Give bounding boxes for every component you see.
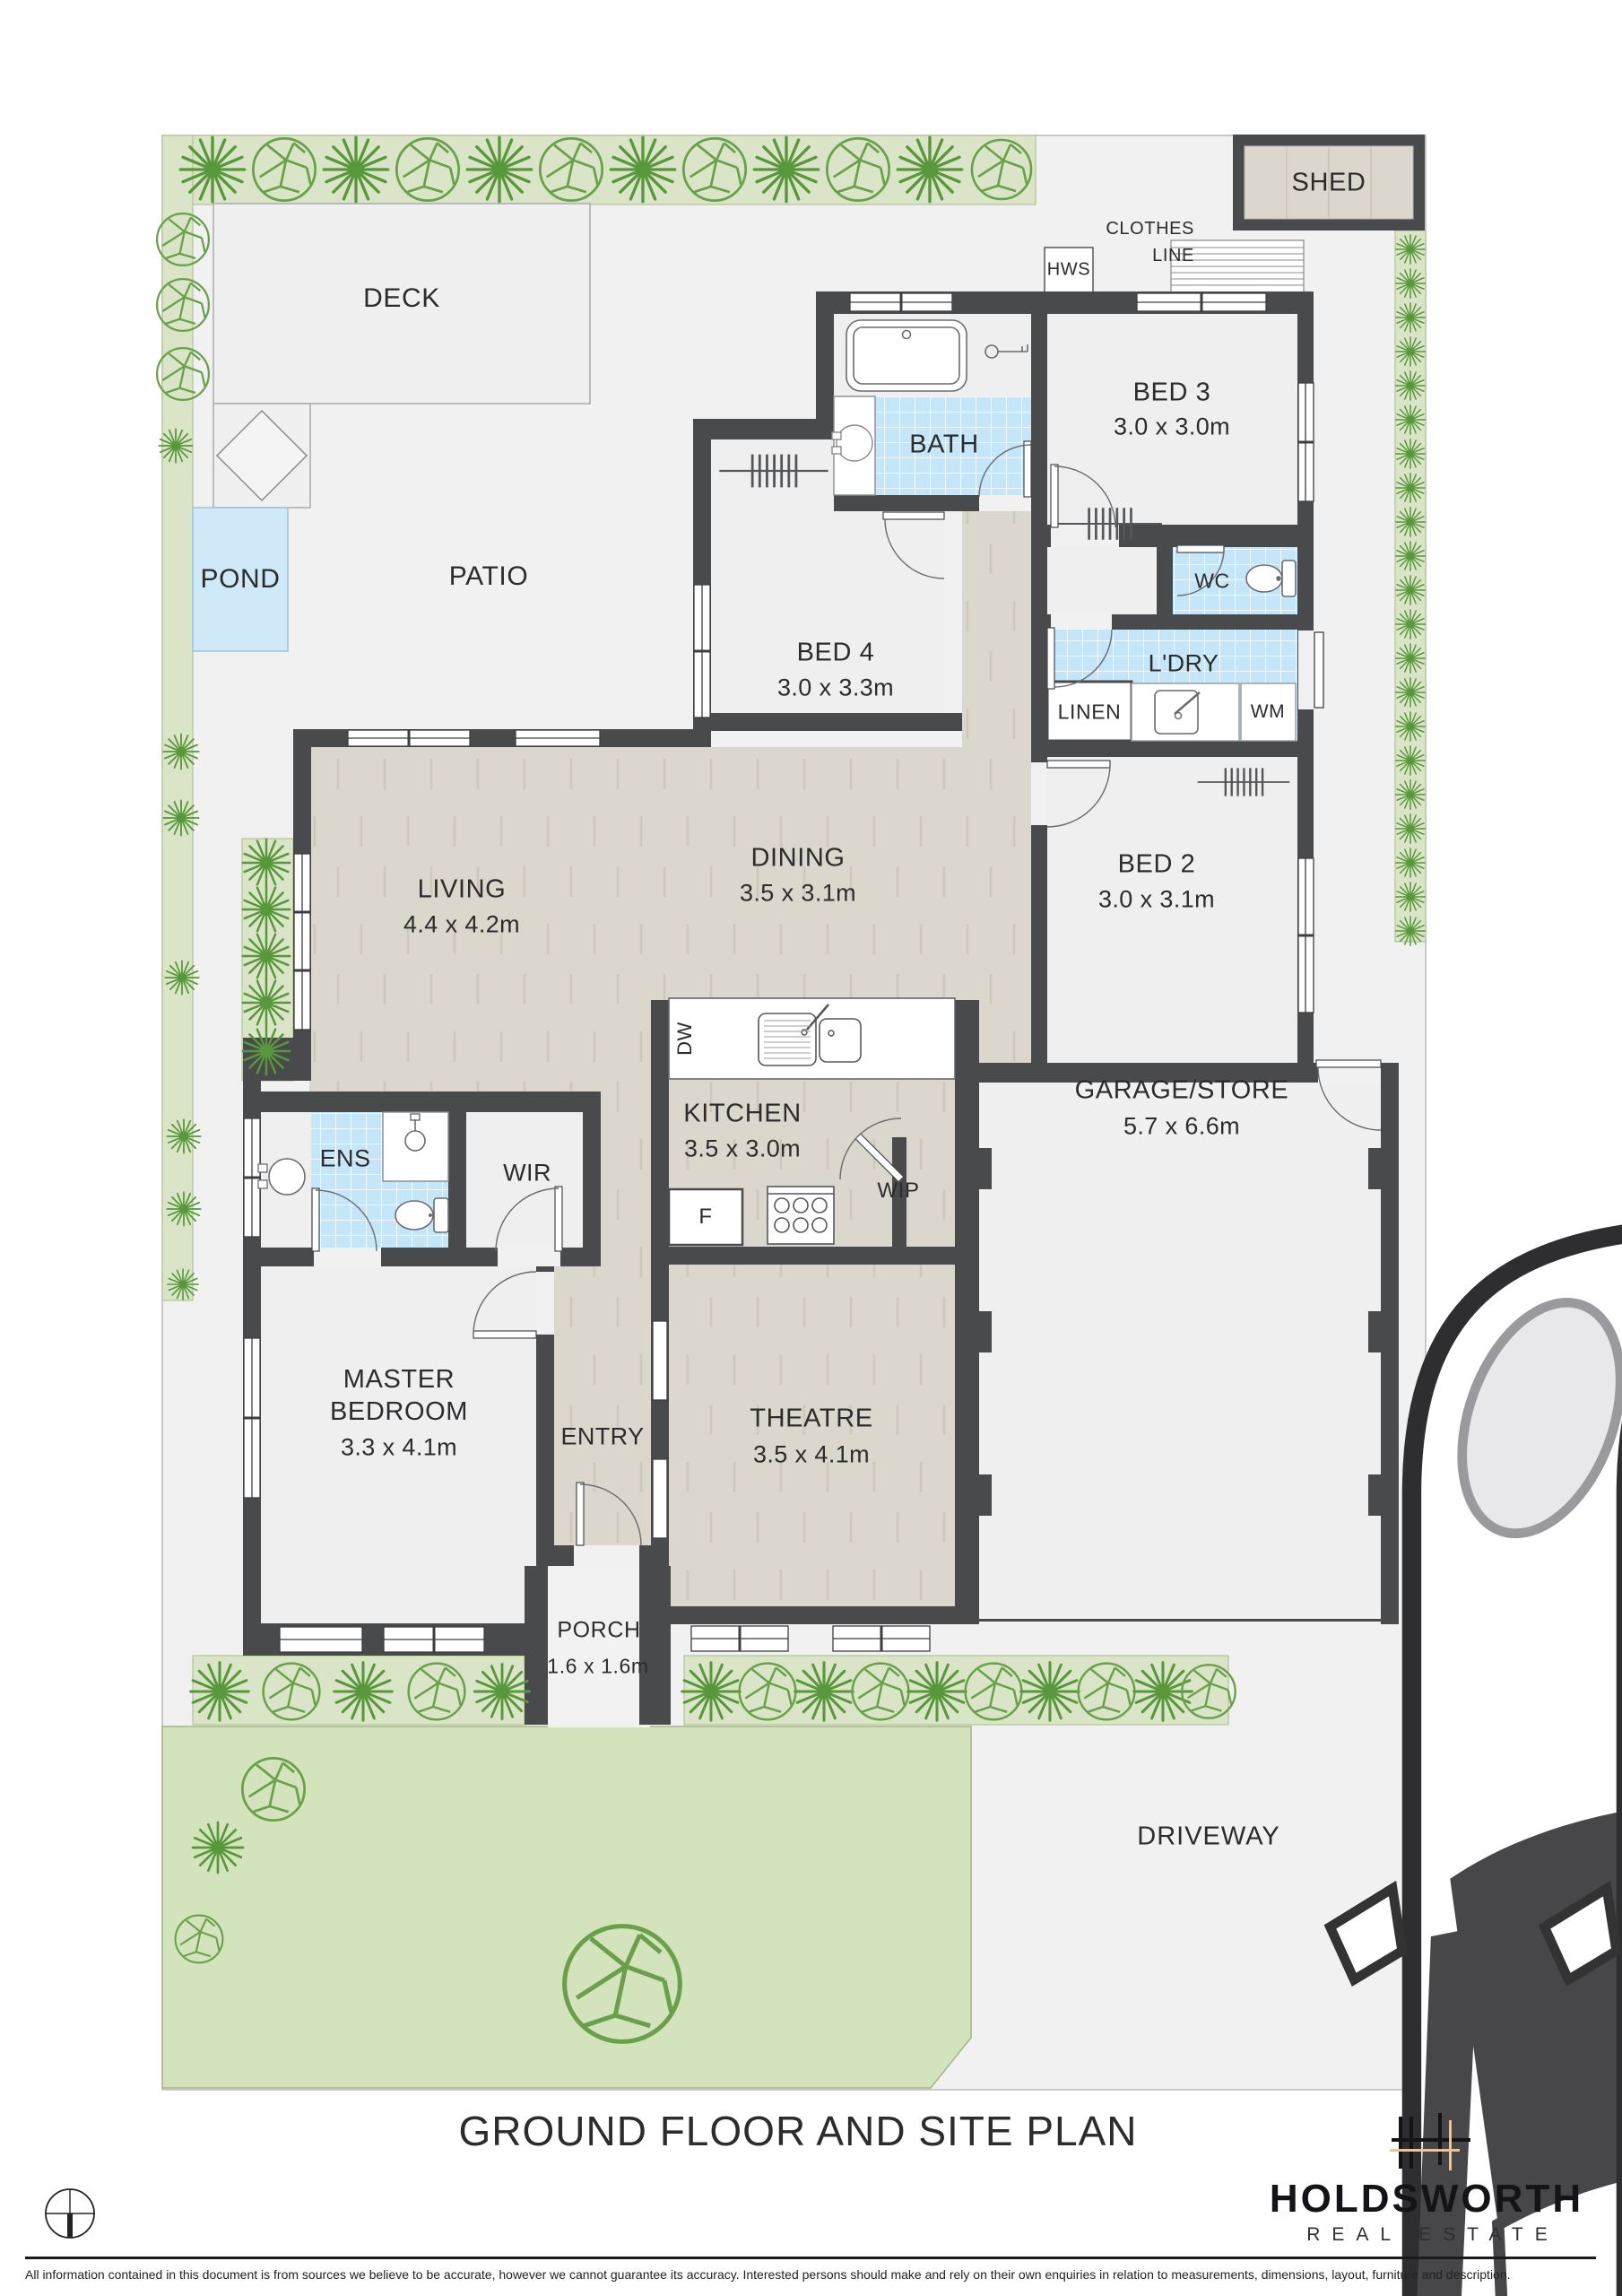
patio-label: PATIO bbox=[449, 561, 529, 592]
palm-plant-icon bbox=[324, 137, 387, 201]
palm-plant-icon bbox=[1396, 610, 1425, 639]
palm-plant-icon bbox=[1396, 371, 1425, 400]
theatre-dims: 3.5 x 4.1m bbox=[753, 1441, 870, 1469]
palm-plant-icon bbox=[1396, 269, 1425, 298]
brand-name: HOLDSWORTH bbox=[1270, 2177, 1583, 2222]
palm-plant-icon bbox=[163, 734, 198, 769]
bath-vanity bbox=[832, 396, 875, 495]
bathtub bbox=[846, 320, 967, 391]
palm-plant-icon bbox=[754, 137, 818, 201]
brand-tagline: REAL ESTATE bbox=[1306, 2224, 1558, 2246]
palm-plant-icon bbox=[1396, 780, 1425, 809]
lawn bbox=[162, 1726, 971, 2088]
pond-label: POND bbox=[200, 564, 280, 595]
entry-label: ENTRY bbox=[560, 1423, 644, 1451]
porch-dims: 1.6 x 1.6m bbox=[547, 1655, 648, 1679]
palm-plant-icon bbox=[1396, 917, 1425, 945]
palm-plant-icon bbox=[1396, 235, 1425, 264]
palm-plant-icon bbox=[1396, 474, 1425, 502]
palm-plant-icon bbox=[1396, 576, 1425, 604]
palm-plant-icon bbox=[1396, 439, 1425, 468]
clothes-line-label: CLOTHES LINE bbox=[1105, 215, 1194, 269]
palm-plant-icon bbox=[795, 1663, 854, 1721]
living-dims: 4.4 x 4.2m bbox=[403, 911, 520, 939]
floor-plan-graphics bbox=[0, 0, 1622, 2296]
wir-label: WIR bbox=[503, 1160, 551, 1187]
palm-plant-icon bbox=[243, 839, 291, 887]
palm-plant-icon bbox=[1396, 337, 1425, 366]
palm-plant-icon bbox=[334, 1663, 393, 1721]
bed3-label: BED 3 bbox=[1133, 378, 1211, 408]
deck-label: DECK bbox=[363, 283, 440, 314]
kitchen-dims: 3.5 x 3.0m bbox=[684, 1135, 801, 1163]
palm-plant-icon bbox=[611, 137, 674, 201]
palm-plant-icon bbox=[1396, 678, 1425, 707]
bed2-label: BED 2 bbox=[1118, 850, 1196, 880]
palm-plant-icon bbox=[1396, 746, 1425, 775]
palm-plant-icon bbox=[908, 1663, 967, 1721]
wip-label: WIP bbox=[877, 1178, 919, 1204]
palm-plant-icon bbox=[243, 1028, 291, 1075]
laundry-label: L'DRY bbox=[1149, 650, 1219, 678]
kitchen-label: KITCHEN bbox=[683, 1100, 802, 1129]
palm-plant-icon bbox=[193, 1822, 243, 1873]
palm-plant-icon bbox=[1396, 883, 1425, 911]
bath-label: BATH bbox=[909, 430, 979, 460]
dining-label: DINING bbox=[750, 844, 845, 874]
compass-icon bbox=[46, 2189, 94, 2238]
dishwasher-label: DW bbox=[673, 1022, 697, 1056]
fridge-label: F bbox=[698, 1205, 712, 1230]
floor-plan-page: DECK POND PATIO SHED HWS CLOTHES LINE BA… bbox=[0, 0, 1622, 2296]
palm-plant-icon bbox=[1396, 712, 1425, 741]
theatre-label: THEATRE bbox=[750, 1405, 872, 1434]
palm-plant-icon bbox=[243, 886, 291, 934]
palm-plant-icon bbox=[1396, 508, 1425, 536]
master-dims: 3.3 x 4.1m bbox=[341, 1434, 457, 1462]
palm-plant-icon bbox=[167, 1119, 200, 1152]
palm-plant-icon bbox=[168, 1269, 198, 1300]
palm-plant-icon bbox=[1396, 644, 1425, 673]
palm-plant-icon bbox=[898, 137, 961, 201]
palm-plant-icon bbox=[474, 1664, 529, 1718]
palm-plant-icon bbox=[1396, 405, 1425, 434]
palm-plant-icon bbox=[163, 800, 198, 835]
page-title: GROUND FLOOR AND SITE PLAN bbox=[458, 2107, 1137, 2155]
wc-label: WC bbox=[1194, 570, 1230, 594]
palm-plant-icon bbox=[159, 429, 192, 462]
kitchen-island bbox=[669, 998, 955, 1079]
palm-plant-icon bbox=[243, 933, 291, 980]
palm-plant-icon bbox=[167, 1192, 200, 1225]
footer-divider bbox=[25, 2257, 1596, 2259]
linen-label: LINEN bbox=[1058, 700, 1122, 725]
stove bbox=[768, 1187, 834, 1244]
bed2-dims: 3.0 x 3.1m bbox=[1098, 886, 1215, 914]
palm-plant-icon bbox=[165, 961, 198, 994]
palm-plant-icon bbox=[180, 137, 244, 201]
bed4-label: BED 4 bbox=[797, 639, 875, 668]
porch-label: PORCH bbox=[557, 1618, 640, 1644]
palm-plant-icon bbox=[1396, 542, 1425, 570]
hws-label: HWS bbox=[1047, 260, 1090, 281]
palm-plant-icon bbox=[467, 137, 531, 201]
palm-plant-icon bbox=[1021, 1663, 1080, 1721]
garage-dims: 5.7 x 6.6m bbox=[1123, 1113, 1240, 1141]
dining-dims: 3.5 x 3.1m bbox=[740, 880, 856, 908]
bed4-dims: 3.0 x 3.3m bbox=[777, 674, 894, 702]
bed3-dims: 3.0 x 3.0m bbox=[1114, 413, 1230, 441]
disclaimer-text: All information contained in this docume… bbox=[25, 2267, 1603, 2282]
palm-plant-icon bbox=[1134, 1663, 1193, 1721]
palm-plant-icon bbox=[682, 1663, 741, 1721]
garage-label: GARAGE/STORE bbox=[1075, 1076, 1289, 1106]
wm-label: WM bbox=[1251, 701, 1286, 723]
master-label: MASTER BEDROOM bbox=[282, 1363, 516, 1429]
shed-label: SHED bbox=[1292, 169, 1366, 198]
palm-plant-icon bbox=[243, 979, 291, 1027]
palm-plant-icon bbox=[1396, 814, 1425, 843]
living-label: LIVING bbox=[418, 875, 507, 905]
palm-plant-icon bbox=[1396, 303, 1425, 332]
palm-plant-icon bbox=[1396, 848, 1425, 877]
palm-plant-icon bbox=[191, 1663, 249, 1721]
driveway-label: DRIVEWAY bbox=[1137, 1822, 1279, 1852]
ens-label: ENS bbox=[320, 1145, 371, 1173]
